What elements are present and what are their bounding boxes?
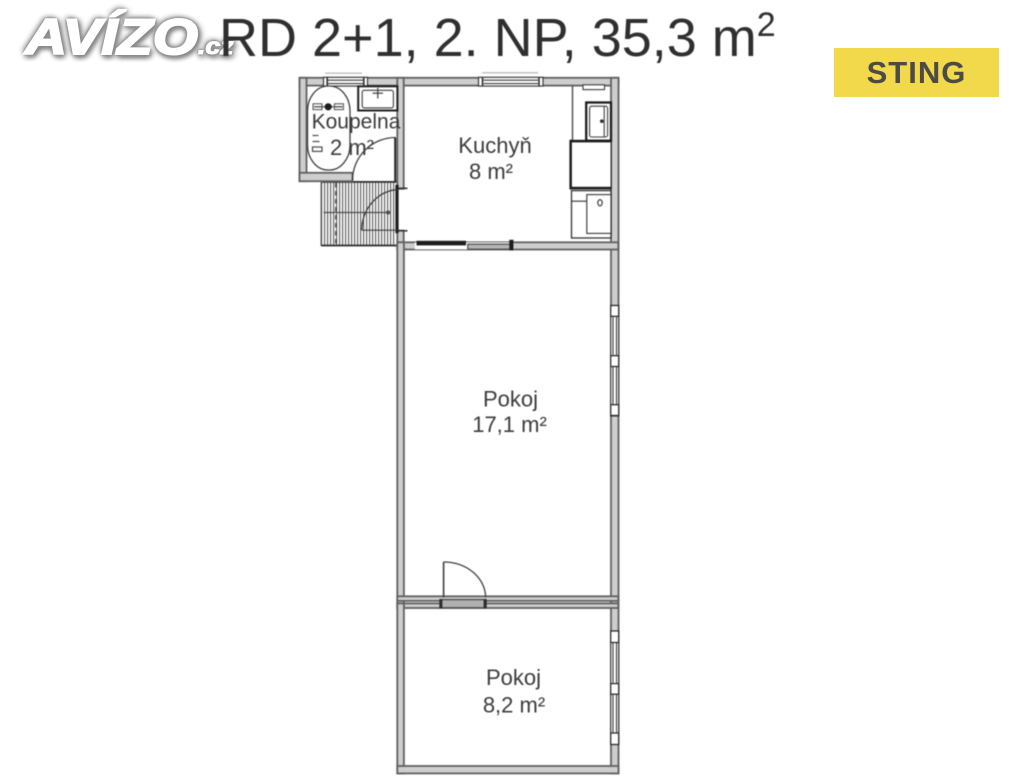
svg-text:Pokoj: Pokoj [483, 387, 538, 412]
svg-text:Pokoj: Pokoj [486, 665, 541, 690]
svg-text:8 m²: 8 m² [469, 159, 513, 184]
svg-text:2 m²: 2 m² [330, 135, 374, 160]
svg-text:Kuchyň: Kuchyň [458, 133, 531, 158]
svg-text:17,1 m²: 17,1 m² [472, 412, 547, 437]
svg-text:8,2 m²: 8,2 m² [483, 693, 545, 718]
svg-text:Koupelna: Koupelna [312, 111, 401, 134]
